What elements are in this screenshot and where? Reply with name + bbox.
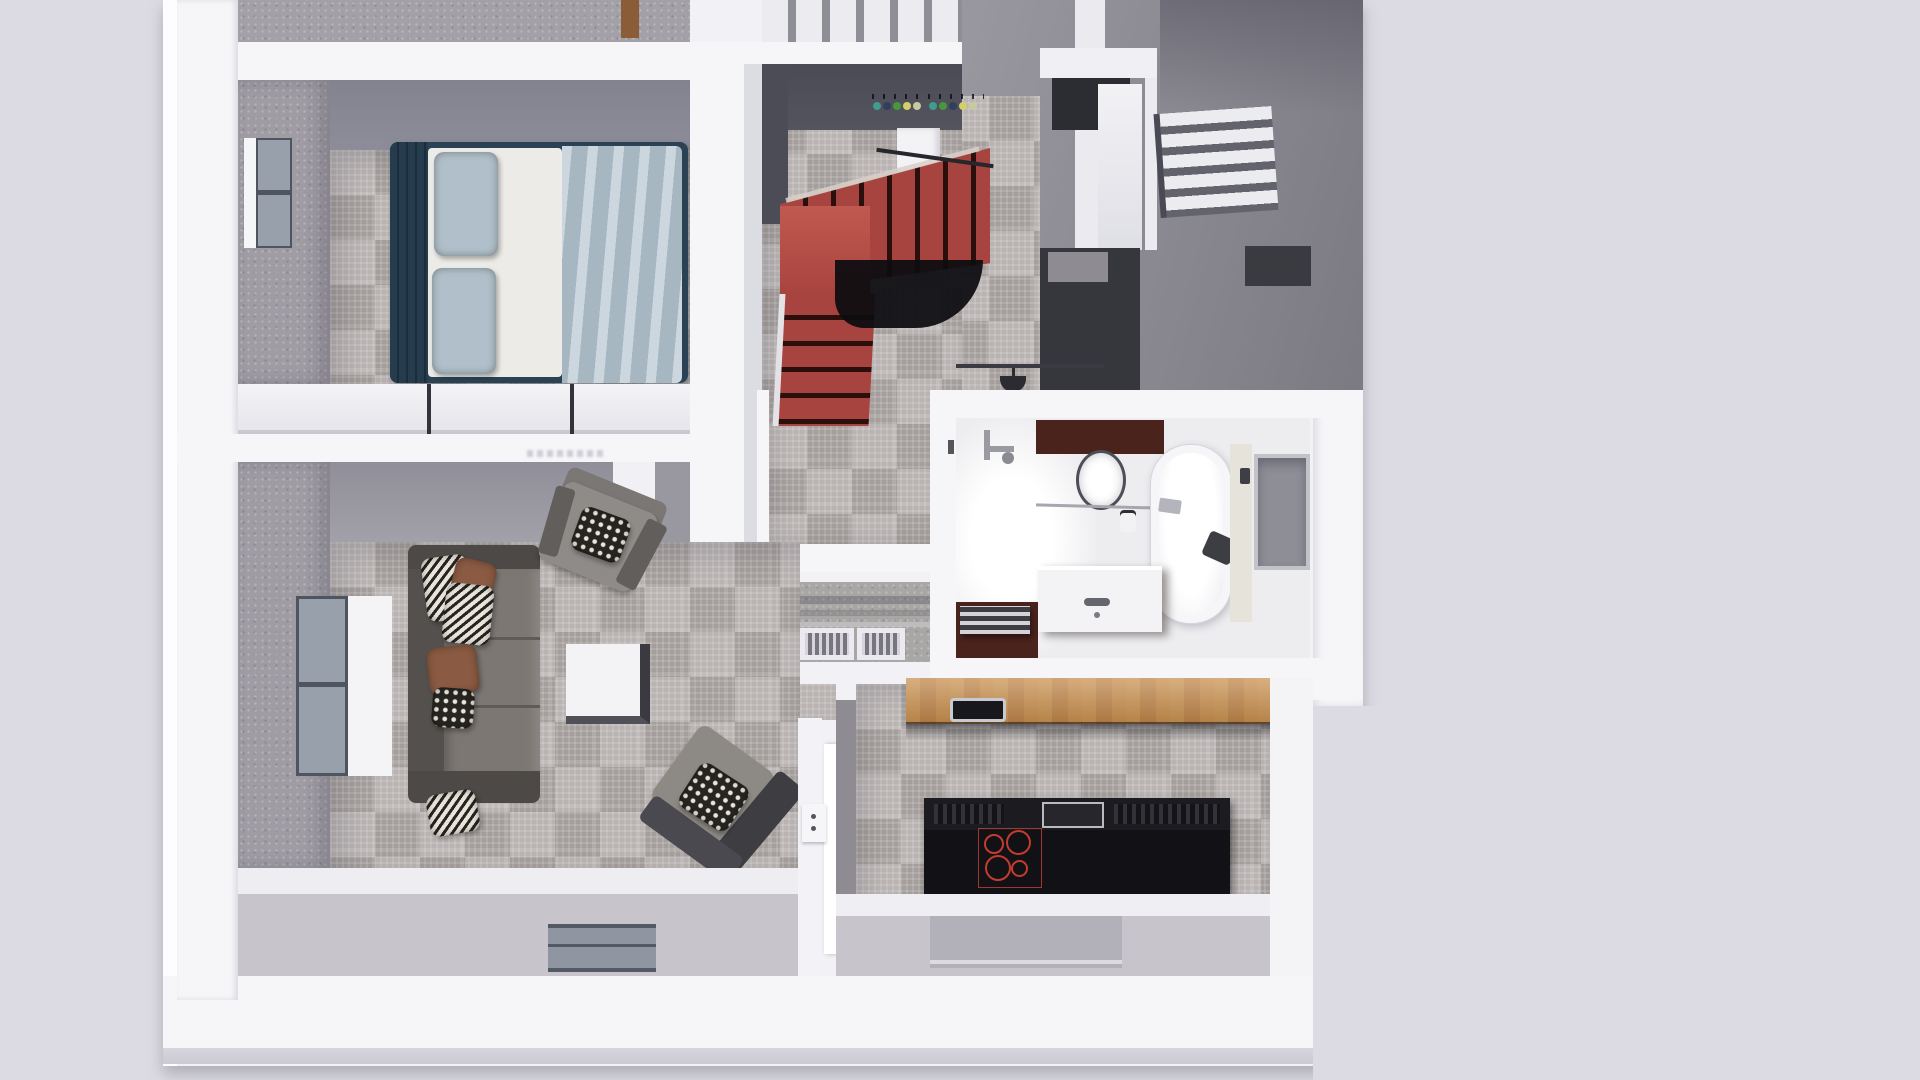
floor-plan-scene	[0, 0, 1920, 1080]
bed-pillow-bottom	[432, 268, 496, 374]
wall-panel-dot-2	[811, 826, 816, 831]
bedroom-top-wall	[238, 42, 690, 80]
coat-hook-knob-hookCream	[969, 102, 977, 110]
shower-fixture	[984, 430, 990, 460]
bed-pillow-top	[434, 152, 498, 256]
coat-hook-knob-hookCream	[913, 102, 921, 110]
dresser-gap-2	[570, 384, 574, 434]
coat-hook-knob-hookNavy	[949, 102, 957, 110]
coat-hook-knob-hookTeal	[873, 102, 881, 110]
coat-hook-knob-hookYellow	[903, 102, 911, 110]
stairwell-top-wall	[762, 42, 962, 64]
burner-top-right	[1006, 830, 1031, 855]
stairwell-left-dark-slab	[762, 64, 788, 224]
coat-hook-knob-hookGreen	[893, 102, 901, 110]
bathtub	[1150, 444, 1232, 624]
kitchen-bottom-wall	[836, 894, 1270, 916]
island-vents-right	[1114, 804, 1220, 824]
kitchen-sink	[950, 698, 1006, 722]
double-bed	[390, 142, 688, 383]
top-sliver-upper-stairs	[762, 0, 962, 42]
bathroom-sink-oval	[1076, 450, 1126, 510]
pendant-lamp-stem	[1012, 368, 1015, 378]
wall-watermark-smudge	[527, 450, 607, 457]
background-patch-bottom-right	[1313, 706, 1383, 1080]
island-control-panel	[1042, 802, 1104, 828]
entry-floor-grille-1	[800, 628, 854, 660]
sofa-pillow-zigzag-3	[425, 788, 482, 838]
bottom-wall-window-plan	[548, 924, 656, 972]
desk-lower-top-face	[1048, 252, 1108, 282]
wall-panel-small	[802, 804, 826, 842]
hall-floor-patch	[800, 684, 836, 720]
living-window-mullion	[296, 682, 348, 687]
bathroom-wall-niche	[1254, 454, 1310, 570]
bottom-wall-window-mullion	[548, 944, 656, 947]
kitchen-left-wall	[798, 718, 822, 976]
burner-top-left	[984, 834, 1004, 854]
bedroom-dresser-row	[238, 384, 718, 434]
kitchen-exterior-step-line	[930, 960, 1122, 964]
sofa-pillow-dotted	[431, 687, 476, 730]
coffee-table	[566, 644, 650, 724]
living-room-exterior-floor	[238, 894, 800, 976]
island-vents-left	[934, 804, 1004, 824]
bathroom-vanity	[1038, 566, 1162, 632]
bedroom-top-wall-face	[330, 80, 690, 150]
shower-arm	[986, 446, 1014, 452]
bed-headboard	[390, 142, 428, 383]
bottom-baseplate-shadow	[163, 1048, 1313, 1064]
burner-bottom-left	[985, 855, 1011, 881]
burner-bottom-right	[1011, 860, 1028, 877]
living-room-bottom-wall	[238, 868, 800, 894]
bathtub-towel	[1158, 498, 1182, 515]
left-outer-wall	[177, 0, 238, 1000]
bathroom-top-wall	[930, 390, 1363, 418]
kitchen-open-door	[824, 744, 836, 954]
bathroom-door-jamb	[930, 418, 956, 658]
bathroom	[956, 418, 1310, 658]
coat-hook-knob-hookGreen	[939, 102, 947, 110]
coat-hooks-left	[872, 94, 922, 125]
glass-partition-line	[956, 364, 1104, 368]
bathroom-brown-wall	[1036, 420, 1164, 454]
toothbrush-cup	[1120, 510, 1136, 532]
bathroom-door-handle	[948, 440, 954, 454]
sofa-pillow-zigzag-2	[441, 582, 495, 647]
coat-hook-knob-hookYellow	[959, 102, 967, 110]
entry-floor-grille-2	[857, 628, 905, 660]
wall-panel-dot-1	[811, 814, 816, 819]
bedroom-window	[244, 138, 300, 248]
cooktop-island	[924, 798, 1230, 894]
bright-doorway-upper	[1098, 84, 1142, 250]
kitchen-counter-shadow	[906, 722, 1270, 740]
kitchen-right-wall	[1270, 678, 1313, 976]
coat-hook-knob-hookTeal	[929, 102, 937, 110]
towel-hook	[1240, 468, 1250, 484]
bedroom-living-divider-wall	[177, 434, 762, 462]
coat-hook-knob-hookNavy	[883, 102, 891, 110]
living-window-sill	[348, 596, 392, 776]
baseplate-left-edge	[163, 0, 177, 1066]
upper-hall-corner-shade	[1160, 0, 1363, 115]
railing-wood-sliver	[621, 0, 639, 38]
bed-blanket	[562, 146, 682, 383]
coat-hooks-right	[928, 94, 984, 125]
upper-room-divider-wall	[1145, 78, 1157, 250]
stairwell-door-jamb	[757, 390, 769, 544]
dresser-gap-1	[427, 384, 431, 434]
stairs-to-upper-floor	[1154, 106, 1279, 218]
vanity-drain-dot	[1094, 612, 1100, 618]
bedroom-window-mullion	[256, 190, 292, 195]
living-room-window	[296, 596, 392, 776]
towel-rack-bench	[960, 606, 1030, 634]
upper-room-top-wall	[1040, 48, 1157, 78]
upper-room-window-band	[1245, 246, 1311, 286]
bedroom-window-frame	[244, 138, 256, 248]
shower-head	[1002, 452, 1014, 464]
vanity-faucet	[1084, 598, 1110, 606]
